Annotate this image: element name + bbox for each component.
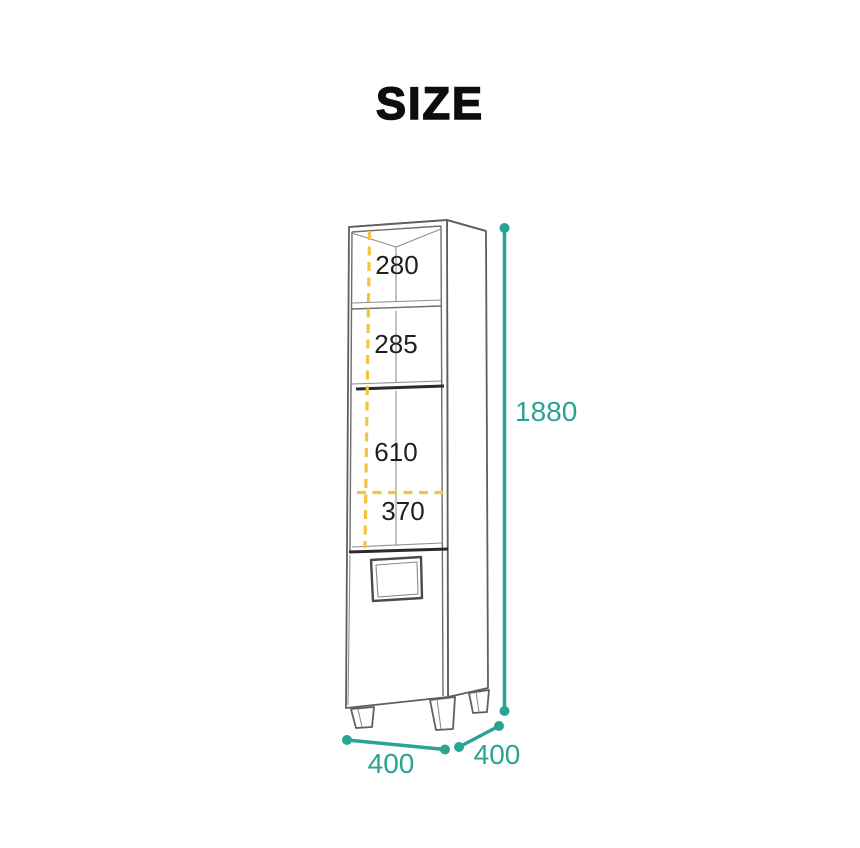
size-diagram-page: SIZE (0, 0, 860, 848)
width-dimension: 400 (342, 735, 450, 779)
width-dimension-dot-right (440, 745, 450, 755)
width-dimension-dot-left (342, 735, 352, 745)
label-width: 400 (368, 748, 415, 779)
depth-dimension-dot-right (494, 721, 504, 731)
cabinet-side-panel (447, 220, 488, 697)
label-interior-width: 370 (381, 496, 424, 526)
label-depth: 400 (474, 739, 521, 770)
cabinet-dimension-diagram: 280 285 610 370 1880 400 400 (0, 0, 860, 848)
label-middle-shelf-height: 285 (374, 329, 417, 359)
depth-dimension-dot-left (454, 742, 464, 752)
height-dimension-dot-bottom (500, 706, 510, 716)
label-lower-compartment-height: 610 (374, 437, 417, 467)
height-dimension: 1880 (500, 223, 578, 716)
height-dimension-dot-top (500, 223, 510, 233)
foot-front-left (351, 707, 374, 728)
depth-dimension: 400 (454, 721, 520, 770)
label-top-shelf-height: 280 (375, 250, 418, 280)
label-total-height: 1880 (515, 396, 577, 427)
foot-front-right (430, 697, 455, 730)
